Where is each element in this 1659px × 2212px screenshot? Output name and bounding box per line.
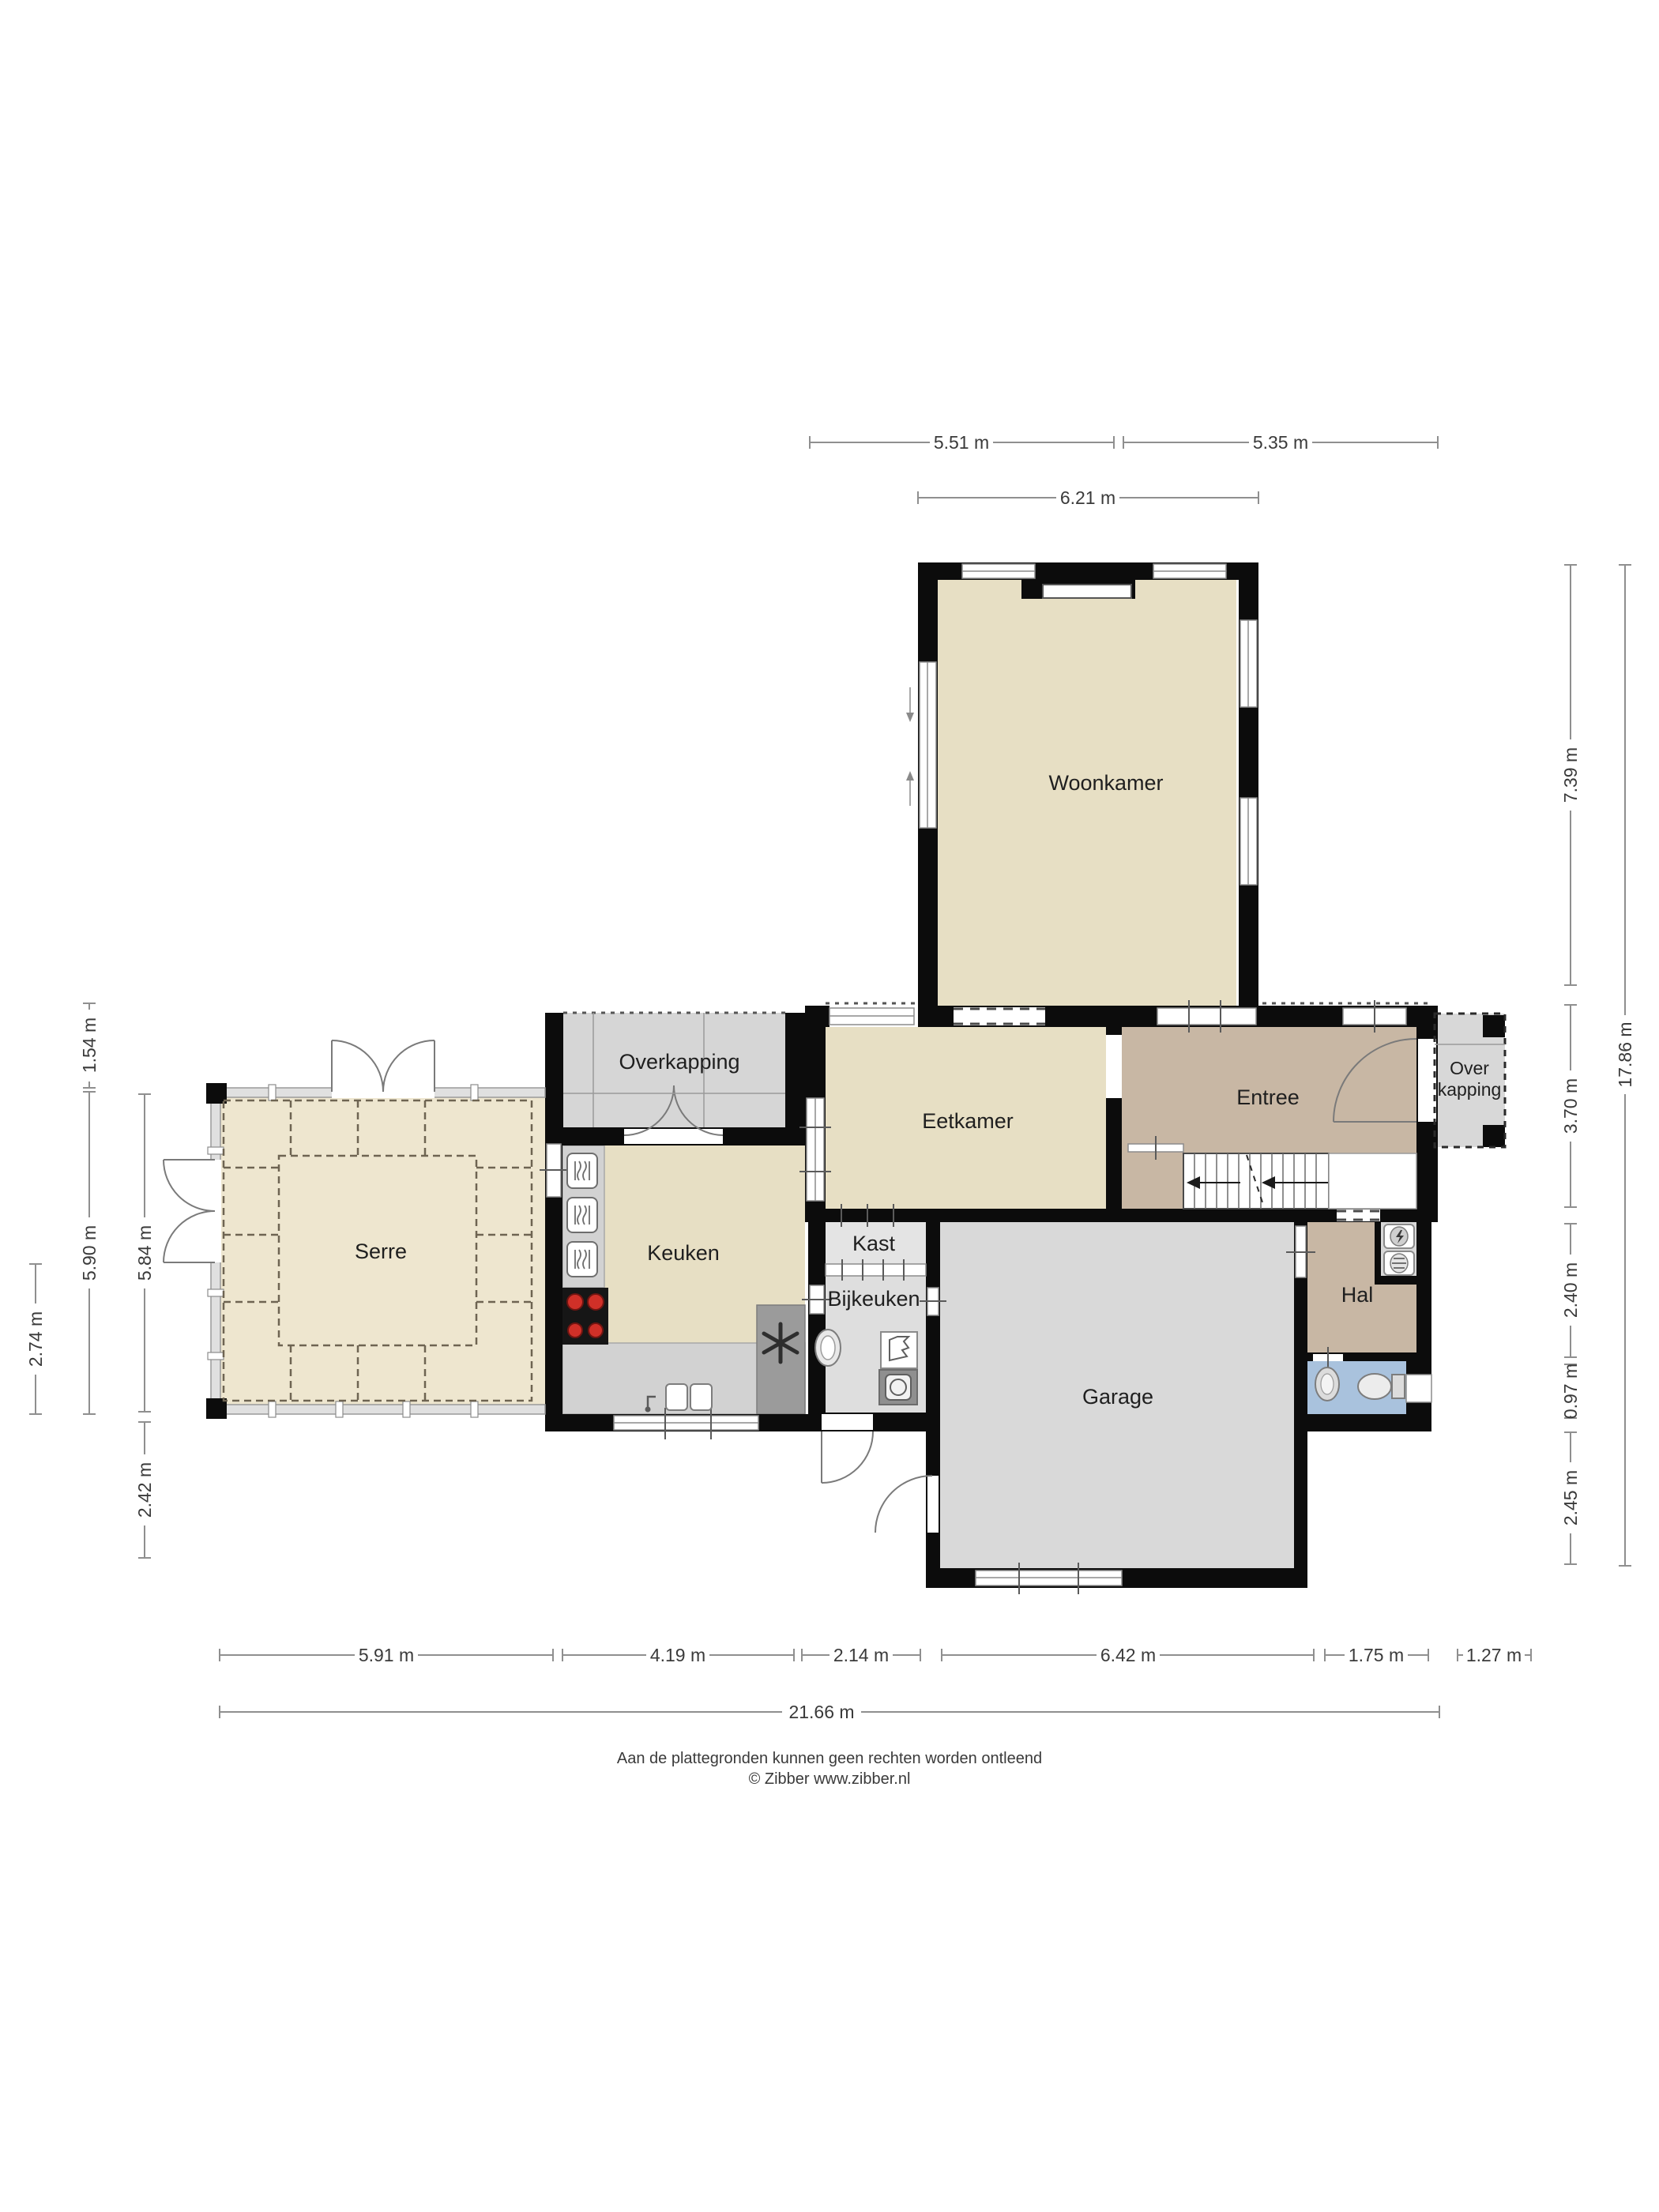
svg-text:3.70 m: 3.70 m xyxy=(1560,1078,1581,1134)
toilet-icon xyxy=(1358,1374,1405,1399)
window-arrow-icon xyxy=(906,687,914,806)
toilet-sink-icon xyxy=(1315,1367,1339,1401)
garage-label: Garage xyxy=(1082,1385,1153,1409)
svg-text:5.51 m: 5.51 m xyxy=(934,432,989,453)
dim-bottom-4-19: 4.19 m xyxy=(562,1645,794,1665)
svg-text:2.42 m: 2.42 m xyxy=(134,1462,155,1518)
entree-landing-floor xyxy=(1122,1148,1183,1209)
entree-label: Entree xyxy=(1236,1085,1300,1109)
dim-bottom-6-42: 6.42 m xyxy=(942,1645,1314,1665)
svg-text:5.91 m: 5.91 m xyxy=(359,1645,414,1665)
bijkeuken-label: Bijkeuken xyxy=(827,1287,920,1311)
overkapping-oost-label-2: kapping xyxy=(1438,1079,1502,1100)
staircase xyxy=(1183,1153,1416,1209)
svg-text:0.97 m: 0.97 m xyxy=(1560,1364,1581,1419)
oven-icon xyxy=(567,1198,597,1232)
dim-top-5-35: 5.35 m xyxy=(1123,432,1438,453)
dim-left-5-84: 5.84 m xyxy=(134,1094,155,1412)
svg-text:2.40 m: 2.40 m xyxy=(1560,1262,1581,1318)
closet-under-stairs xyxy=(1329,1153,1416,1209)
footer: Aan de plattegronden kunnen geen rechten… xyxy=(617,1750,1042,1788)
svg-text:6.42 m: 6.42 m xyxy=(1100,1645,1156,1665)
svg-text:5.84 m: 5.84 m xyxy=(134,1225,155,1281)
bijkeuken-door-swing xyxy=(822,1431,873,1483)
svg-text:6.21 m: 6.21 m xyxy=(1060,487,1115,508)
keuken-label: Keuken xyxy=(647,1241,720,1265)
kast-label: Kast xyxy=(852,1232,896,1255)
dim-bottom-5-91: 5.91 m xyxy=(220,1645,553,1665)
dim-right-7-39: 7.39 m xyxy=(1560,565,1581,985)
svg-text:1.27 m: 1.27 m xyxy=(1466,1645,1522,1665)
svg-text:4.19 m: 4.19 m xyxy=(650,1645,705,1665)
dim-bottom-2-14: 2.14 m xyxy=(802,1645,920,1665)
eetkamer-label: Eetkamer xyxy=(922,1109,1014,1133)
serre-label: Serre xyxy=(355,1240,407,1263)
svg-text:2.14 m: 2.14 m xyxy=(833,1645,889,1665)
dim-right-2-40: 2.40 m xyxy=(1560,1224,1581,1357)
utility-sink-icon xyxy=(815,1330,841,1366)
dim-top-6-21: 6.21 m xyxy=(918,487,1258,508)
porch-post-bottom xyxy=(1483,1125,1505,1147)
dim-left-1-54: 1.54 m xyxy=(79,1003,100,1088)
svg-text:2.74 m: 2.74 m xyxy=(25,1311,46,1367)
copyright-text: © Zibber www.zibber.nl xyxy=(749,1770,911,1788)
garage-side-door-gap xyxy=(927,1476,939,1533)
dim-bottom-1-27: 1.27 m xyxy=(1458,1645,1531,1665)
svg-text:21.66 m: 21.66 m xyxy=(788,1702,854,1722)
dim-right-0-97: 0.97 m xyxy=(1560,1364,1581,1419)
cooktop-icon xyxy=(562,1288,608,1345)
svg-text:1.54 m: 1.54 m xyxy=(79,1018,100,1073)
svg-text:1.75 m: 1.75 m xyxy=(1349,1645,1404,1665)
oven-icon xyxy=(567,1242,597,1277)
bijkeuken-door-gap xyxy=(822,1414,873,1430)
dim-left-2-74: 2.74 m xyxy=(25,1264,46,1414)
dim-left-2-42: 2.42 m xyxy=(134,1422,155,1558)
garage-side-door-swing xyxy=(875,1476,932,1533)
woonkamer-label: Woonkamer xyxy=(1048,771,1163,795)
serre-north-door-swing xyxy=(332,1040,383,1092)
keuken-overkapping-door-gap xyxy=(624,1129,723,1144)
overkapping-oost-label-1: Over xyxy=(1450,1058,1489,1078)
overkapping-noord-label: Overkapping xyxy=(619,1050,739,1074)
dim-right-3-70: 3.70 m xyxy=(1560,1005,1581,1207)
floor-plan: Woonkamer Eetkamer Entree Overkapping Ov… xyxy=(0,0,1659,2212)
washing-machine-icon xyxy=(879,1370,917,1405)
svg-text:2.45 m: 2.45 m xyxy=(1560,1470,1581,1525)
svg-text:7.39 m: 7.39 m xyxy=(1560,747,1581,803)
svg-text:5.35 m: 5.35 m xyxy=(1253,432,1308,453)
chimney-recess xyxy=(1043,585,1131,598)
porch-post-top xyxy=(1483,1015,1505,1037)
disclaimer-text: Aan de plattegronden kunnen geen rechten… xyxy=(617,1750,1042,1767)
dim-right-2-45: 2.45 m xyxy=(1560,1432,1581,1564)
ventilation-unit-icon xyxy=(1384,1251,1414,1275)
oven-icon xyxy=(567,1153,597,1188)
svg-text:5.90 m: 5.90 m xyxy=(79,1225,100,1281)
dim-bottom-1-75: 1.75 m xyxy=(1325,1645,1428,1665)
hal-label: Hal xyxy=(1341,1283,1374,1307)
dim-top-5-51: 5.51 m xyxy=(810,432,1114,453)
svg-text:17.86 m: 17.86 m xyxy=(1615,1021,1635,1087)
dim-right-17-86: 17.86 m xyxy=(1615,565,1635,1566)
dim-bottom-21-66: 21.66 m xyxy=(220,1702,1439,1722)
boiler-icon xyxy=(1384,1224,1414,1248)
laundry-tub-icon xyxy=(881,1332,917,1368)
dim-left-5-90: 5.90 m xyxy=(79,1092,100,1414)
serre-west-door-swing xyxy=(164,1160,215,1211)
